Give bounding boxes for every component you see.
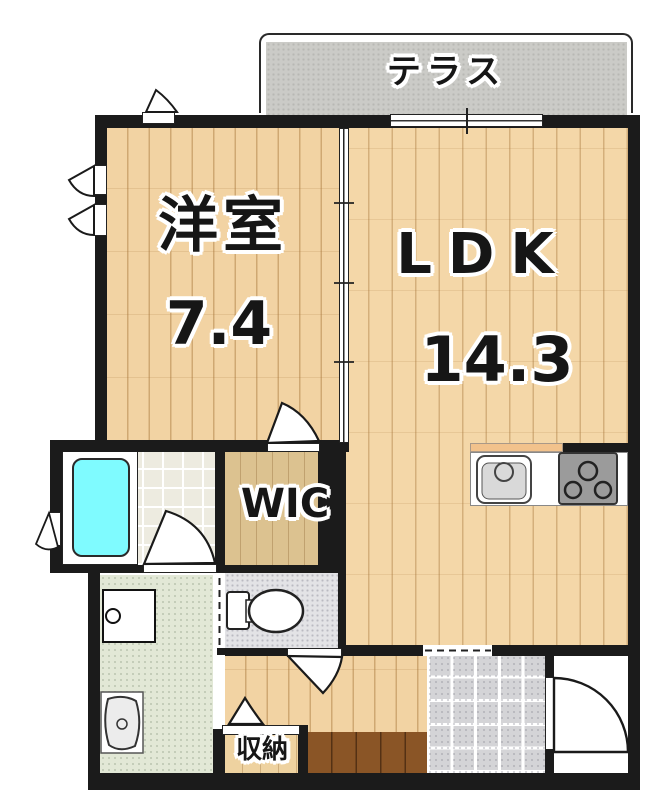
bath-window-leaf bbox=[49, 512, 61, 546]
western-room-label: 洋室 bbox=[107, 195, 339, 257]
hallway-floor bbox=[225, 655, 427, 732]
wall-bathroom-left bbox=[50, 443, 62, 573]
entry-step bbox=[308, 732, 427, 773]
wic-label: WIC bbox=[225, 483, 345, 525]
washing-machine bbox=[102, 589, 156, 643]
wall-toilet-right bbox=[338, 573, 346, 656]
ldk-genkan-opening bbox=[423, 645, 492, 656]
wall-entry-jamb-top bbox=[545, 656, 554, 679]
top-window-swing-icon bbox=[146, 90, 177, 112]
left-window-leaf-2 bbox=[94, 204, 107, 236]
wall-top bbox=[95, 115, 640, 128]
terrace-label: テラス bbox=[266, 54, 627, 90]
storage-door-leaf bbox=[222, 725, 300, 735]
entry-door-leaf bbox=[545, 677, 554, 750]
wall-bathroom-right bbox=[215, 443, 225, 565]
wall-kitchen-top bbox=[563, 443, 628, 452]
bathroom-door-leaf bbox=[143, 564, 217, 573]
storage-label: 収納 bbox=[214, 736, 310, 764]
sliding-partition bbox=[339, 128, 349, 443]
genkan-tile-floor bbox=[427, 655, 545, 773]
wall-bottom bbox=[88, 773, 640, 790]
western-room-size-label: 7.4 bbox=[107, 293, 331, 355]
ldk-label: LDK bbox=[346, 225, 620, 285]
wall-right bbox=[628, 115, 640, 790]
washroom-hall-opening bbox=[213, 655, 225, 729]
toilet-door-leaf bbox=[287, 648, 342, 657]
bathtub bbox=[72, 458, 130, 557]
kitchen-counter-edge bbox=[470, 443, 563, 452]
kitchen-counter bbox=[470, 452, 628, 506]
toilet-floor bbox=[225, 573, 338, 648]
ldk-size-label: 14.3 bbox=[346, 328, 648, 392]
wall-entry-jamb-bottom bbox=[545, 749, 554, 773]
left-window-swing-1-icon bbox=[69, 166, 94, 196]
wall-washroom-left bbox=[88, 573, 100, 773]
entry-alcove bbox=[553, 656, 628, 773]
left-window-swing-2-icon bbox=[69, 205, 94, 235]
western-room-floor bbox=[107, 128, 339, 440]
left-window-leaf-1 bbox=[94, 165, 107, 195]
floorplan: テラス 洋室 7.4 LDK 14.3 WIC 収納 bbox=[0, 0, 666, 812]
terrace-window bbox=[390, 114, 543, 127]
top-window-leaf bbox=[142, 112, 175, 124]
wic-door-leaf bbox=[267, 443, 320, 452]
